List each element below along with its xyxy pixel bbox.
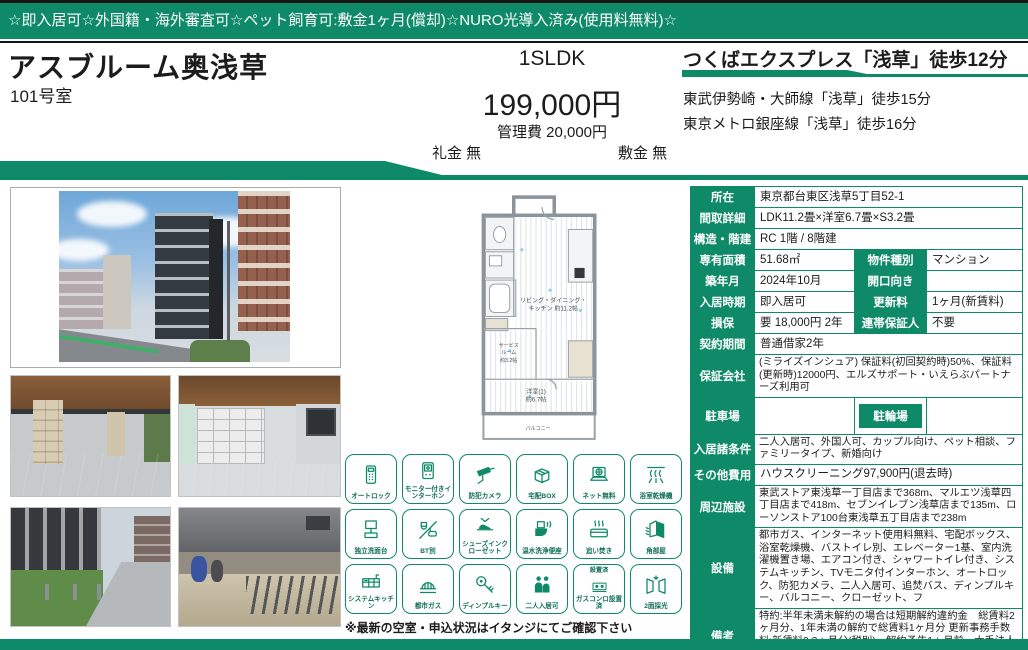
amenity-label: 追い焚き [586, 548, 612, 556]
details-value [927, 271, 1023, 292]
monitor-intercom-icon [416, 459, 440, 483]
amenity-gas-stove: 設置済ガスコンロ設置済 [573, 564, 625, 614]
details-row: 所在東京都台東区浅草5丁目52-1 [691, 187, 1023, 208]
amenity-vanity: 独立洗面台 [345, 509, 397, 559]
details-label: 損保 [691, 313, 755, 334]
svg-text:約6.7帖: 約6.7帖 [526, 395, 547, 403]
details-row: 損保要 18,000円 2年連帯保証人不要 [691, 313, 1023, 334]
photo-bicycle-parking [178, 507, 341, 627]
amenity-delivery-box: 宅配BOX [516, 454, 568, 504]
details-row: 周辺施設東武ストア東浅草一丁目店まで368m、マルエツ浅草四丁目店まで418m、… [691, 485, 1023, 528]
details-row: 設備都市ガス、インターネット使用料無料、宅配ボックス、浴室乾燥機、バストイレ別、… [691, 528, 1023, 608]
layout-type: 1SLDK [452, 47, 652, 71]
amenity-city-gas: 都市ガス [402, 564, 454, 614]
amenity-label: 二人入居可 [526, 603, 559, 611]
details-label: 入居諸条件 [691, 434, 755, 464]
details-row: 契約期間普通借家2年 [691, 334, 1023, 355]
details-label: 連帯保証人 [855, 313, 927, 334]
details-row: 間取詳細LDK11.2畳×洋室6.7畳×S3.2畳 [691, 208, 1023, 229]
amenity-label: 浴室乾燥機 [640, 493, 673, 501]
amenity-bathroom-dryer: 浴室乾燥機 [630, 454, 682, 504]
svg-text:ルーム: ルーム [501, 350, 516, 356]
details-label: 保証会社 [691, 355, 755, 398]
details-value: 二人入居可、外国人可、カップル向け、ペット相談、ファミリータイプ、新婚向け [755, 434, 1023, 464]
property-details: 所在東京都台東区浅草5丁目52-1間取詳細LDK11.2畳×洋室6.7畳×S3.… [690, 186, 1022, 650]
details-label: 所在 [691, 187, 755, 208]
svg-text:キッチン 約11.2帖: キッチン 約11.2帖 [529, 304, 578, 312]
two-side-light-icon [644, 573, 668, 597]
amenity-bath-toilet-separate: BT別 [402, 509, 454, 559]
neighbor-building-right [238, 191, 290, 331]
amenity-label: 角部屋 [646, 548, 666, 556]
top-feature-banner-text: ☆即入居可☆外国籍・海外審査可☆ペット飼育可:敷金1ヶ月(償却)☆NURO光導入… [8, 12, 677, 29]
management-fee: 管理費 20,000円 [452, 121, 652, 142]
property-name: アスブルーム奥浅草 [8, 46, 268, 86]
photo-garden [10, 507, 171, 627]
ldk-label: リビング・ダイニング・ [520, 296, 587, 304]
details-label: 開口向き [855, 271, 927, 292]
vanity-icon [359, 518, 383, 542]
details-value: 要 18,000円 2年 [755, 313, 855, 334]
amenity-auto-lock: オートロック [345, 454, 397, 504]
amenity-monitor-intercom: モニター付きインターホン [402, 454, 454, 504]
amenity-shoe-closet: シューズインクローゼット [459, 509, 511, 559]
city-gas-icon [416, 573, 440, 597]
availability-note: ※最新の空室・申込状況はイタンジにてご確認下さい [345, 619, 632, 636]
delivery-boxes [197, 408, 265, 464]
svg-text:約3.2帖: 約3.2帖 [500, 357, 517, 364]
amenity-badge: 設置済 [590, 568, 609, 574]
access-line-3: 東京メトロ銀座線「浅草」徒歩16分 [683, 113, 917, 134]
details-value: 東京都台東区浅草5丁目52-1 [755, 187, 1023, 208]
floor-plan-drawing: リビング・ダイニング・ キッチン 約11.2帖 サービス ルーム 約3.2帖 洋… [448, 189, 620, 445]
amenity-label: 温水洗浄便座 [522, 548, 562, 556]
details-value [927, 397, 1023, 434]
amenity-security-camera: 防犯カメラ [459, 454, 511, 504]
details-label: 専有面積 [691, 250, 755, 271]
main-photo-frame [10, 187, 341, 368]
details-value: 不要 [927, 313, 1023, 334]
amenity-label: システムキッチン [347, 596, 395, 611]
corner-room-icon [644, 518, 668, 542]
details-row: 駐車場駐輪場 [691, 397, 1023, 434]
details-value [755, 397, 855, 434]
amenity-label: 独立洗面台 [355, 548, 388, 556]
amenity-label: シューズインクローゼット [461, 541, 509, 556]
details-value: 即入居可 [755, 292, 855, 313]
system-kitchen-icon [359, 569, 383, 593]
photo-mailbox-lobby [178, 375, 341, 497]
details-label: 築年月 [691, 271, 755, 292]
room-number: 101号室 [10, 82, 72, 107]
details-row: 専有面積51.68㎡物件種別マンション [691, 250, 1023, 271]
amenity-two-person: 二人入居可 [516, 564, 568, 614]
property-flyer: ☆即入居可☆外国籍・海外審査可☆ペット飼育可:敷金1ヶ月(償却)☆NURO光導入… [0, 0, 1028, 650]
details-label: 駐輪場 [855, 397, 927, 434]
amenity-internet-free: ネット無料 [573, 454, 625, 504]
service-room-label: サービス [499, 342, 519, 349]
dimple-key-icon [473, 573, 497, 597]
access-line-primary: つくばエクスプレス「浅草」徒歩12分 [683, 45, 1008, 72]
details-row: 構造・階建RC 1階 / 8階建 [691, 229, 1023, 250]
bottom-bar [0, 639, 1028, 650]
details-value: 2024年10月 [755, 271, 855, 292]
amenity-label: BT別 [420, 548, 435, 556]
shoe-closet-icon [473, 514, 497, 538]
details-row: 保証会社(ミライズインシュア) 保証料(初回契約時)50%、保証料(更新時)12… [691, 355, 1023, 398]
balcony-label: バルコニー [525, 426, 550, 432]
key-money: 礼金 無 [432, 142, 481, 163]
details-value: 51.68㎡ [755, 250, 855, 271]
amenity-label: 2面採光 [644, 603, 667, 611]
details-value: 1ヶ月(新賃料) [927, 292, 1023, 313]
details-table: 所在東京都台東区浅草5丁目52-1間取詳細LDK11.2畳×洋室6.7畳×S3.… [690, 186, 1023, 650]
utility-pole [227, 221, 230, 341]
details-label: 間取詳細 [691, 208, 755, 229]
details-value: 普通借家2年 [755, 334, 1023, 355]
details-row: 入居時期即入居可更新料1ヶ月(新賃料) [691, 292, 1023, 313]
details-row: 入居諸条件二人入居可、外国人可、カップル向け、ペット相談、ファミリータイプ、新婚… [691, 434, 1023, 464]
delivery-box-icon [530, 463, 554, 487]
details-label: 更新料 [855, 292, 927, 313]
details-label: その他費用 [691, 464, 755, 485]
stone-pillar [33, 400, 63, 464]
amenity-label: ガスコンロ設置済 [575, 596, 623, 611]
amenity-label: ネット無料 [583, 493, 616, 501]
photo-entrance [10, 375, 171, 497]
bedroom-label: 洋室(1) [526, 387, 546, 395]
header-ribbon [0, 161, 1028, 180]
security-camera-icon [473, 463, 497, 487]
gas-stove-icon [590, 576, 609, 595]
amenity-washlet: 温水洗浄便座 [516, 509, 568, 559]
subject-building [155, 213, 213, 339]
auto-lock-icon [359, 463, 383, 487]
details-value: ハウスクリーニング97,900円(退去時) [755, 464, 1023, 485]
closet [568, 341, 592, 377]
amenity-label: 防犯カメラ [469, 493, 502, 501]
internet-free-icon [587, 463, 611, 487]
details-label: 駐車場 [691, 397, 755, 434]
details-value: LDK11.2畳×洋室6.7畳×S3.2畳 [755, 208, 1023, 229]
details-value: 都市ガス、インターネット使用料無料、宅配ボックス、浴室乾燥機、バストイレ別、エレ… [755, 528, 1023, 608]
details-value: 東武ストア東浅草一丁目店まで368m、マルエツ浅草四丁目店まで418m、セブンイ… [755, 485, 1023, 528]
details-label: 物件種別 [855, 250, 927, 271]
photo-building-exterior [59, 191, 290, 362]
lawn [11, 570, 103, 626]
deposit: 敷金 無 [618, 142, 667, 163]
bath-toilet-separate-icon [416, 518, 440, 542]
amenity-label: 宅配BOX [528, 493, 555, 501]
amenity-system-kitchen: システムキッチン [345, 564, 397, 614]
details-label: 入居時期 [691, 292, 755, 313]
details-row: 築年月2024年10月開口向き [691, 271, 1023, 292]
details-value: RC 1階 / 8階建 [755, 229, 1023, 250]
amenity-reheating-bath: 追い焚き [573, 509, 625, 559]
amenity-label: 都市ガス [415, 603, 441, 611]
two-person-icon [530, 573, 554, 597]
amenity-dimple-key: ディンプルキー [459, 564, 511, 614]
details-value: マンション [927, 250, 1023, 271]
details-row: その他費用ハウスクリーニング97,900円(退去時) [691, 464, 1023, 485]
header-rule [0, 41, 1028, 43]
rent-amount: 199,000円 [442, 80, 662, 124]
bike-racks [246, 576, 338, 614]
details-label: 契約期間 [691, 334, 755, 355]
top-feature-banner: ☆即入居可☆外国籍・海外審査可☆ペット飼育可:敷金1ヶ月(償却)☆NURO光導入… [0, 0, 1028, 39]
amenity-grid: オートロックモニター付きインターホン防犯カメラ宅配BOXネット無料浴室乾燥機独立… [345, 454, 685, 614]
amenity-corner-room: 角部屋 [630, 509, 682, 559]
amenity-two-side-light: 2面採光 [630, 564, 682, 614]
washlet-icon [530, 518, 554, 542]
access-line-2: 東武伊勢崎・大師線「浅草」徒歩15分 [683, 88, 931, 109]
amenity-label: ディンプルキー [462, 603, 508, 611]
amenity-label: オートロック [351, 493, 391, 501]
details-label: 構造・階建 [691, 229, 755, 250]
details-label: 設備 [691, 528, 755, 608]
details-value: (ミライズインシュア) 保証料(初回契約時)50%、保証料(更新時)12000円… [755, 355, 1023, 398]
details-label: 周辺施設 [691, 485, 755, 528]
bathroom-dryer-icon [644, 463, 668, 487]
amenity-label: モニター付きインターホン [404, 486, 452, 501]
reheating-bath-icon [587, 518, 611, 542]
floor-plan: リビング・ダイニング・ キッチン 約11.2帖 サービス ルーム 約3.2帖 洋… [448, 189, 620, 445]
